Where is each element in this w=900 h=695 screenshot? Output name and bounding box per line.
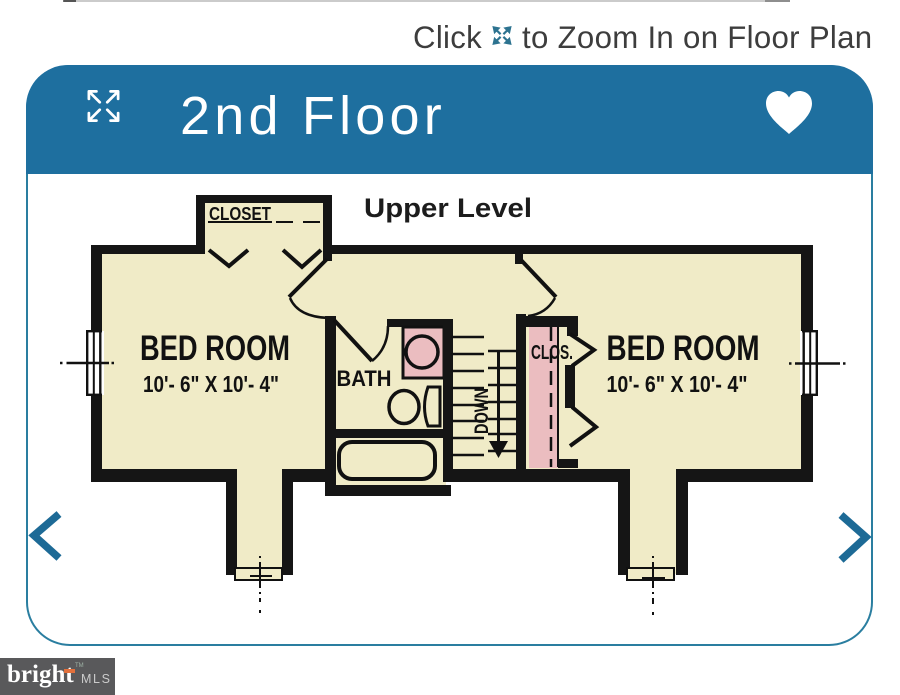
svg-text:BATH: BATH [337, 366, 392, 391]
svg-text:BED ROOM: BED ROOM [140, 329, 290, 368]
svg-text:CLOS.: CLOS. [531, 342, 573, 364]
svg-text:Upper Level: Upper Level [364, 193, 532, 223]
svg-text:10'- 6" X 10'- 4": 10'- 6" X 10'- 4" [143, 371, 279, 397]
svg-text:BED ROOM: BED ROOM [607, 329, 760, 368]
svg-text:DOWN: DOWN [472, 388, 493, 434]
svg-text:10'- 6" X 10'- 4": 10'- 6" X 10'- 4" [607, 371, 748, 397]
